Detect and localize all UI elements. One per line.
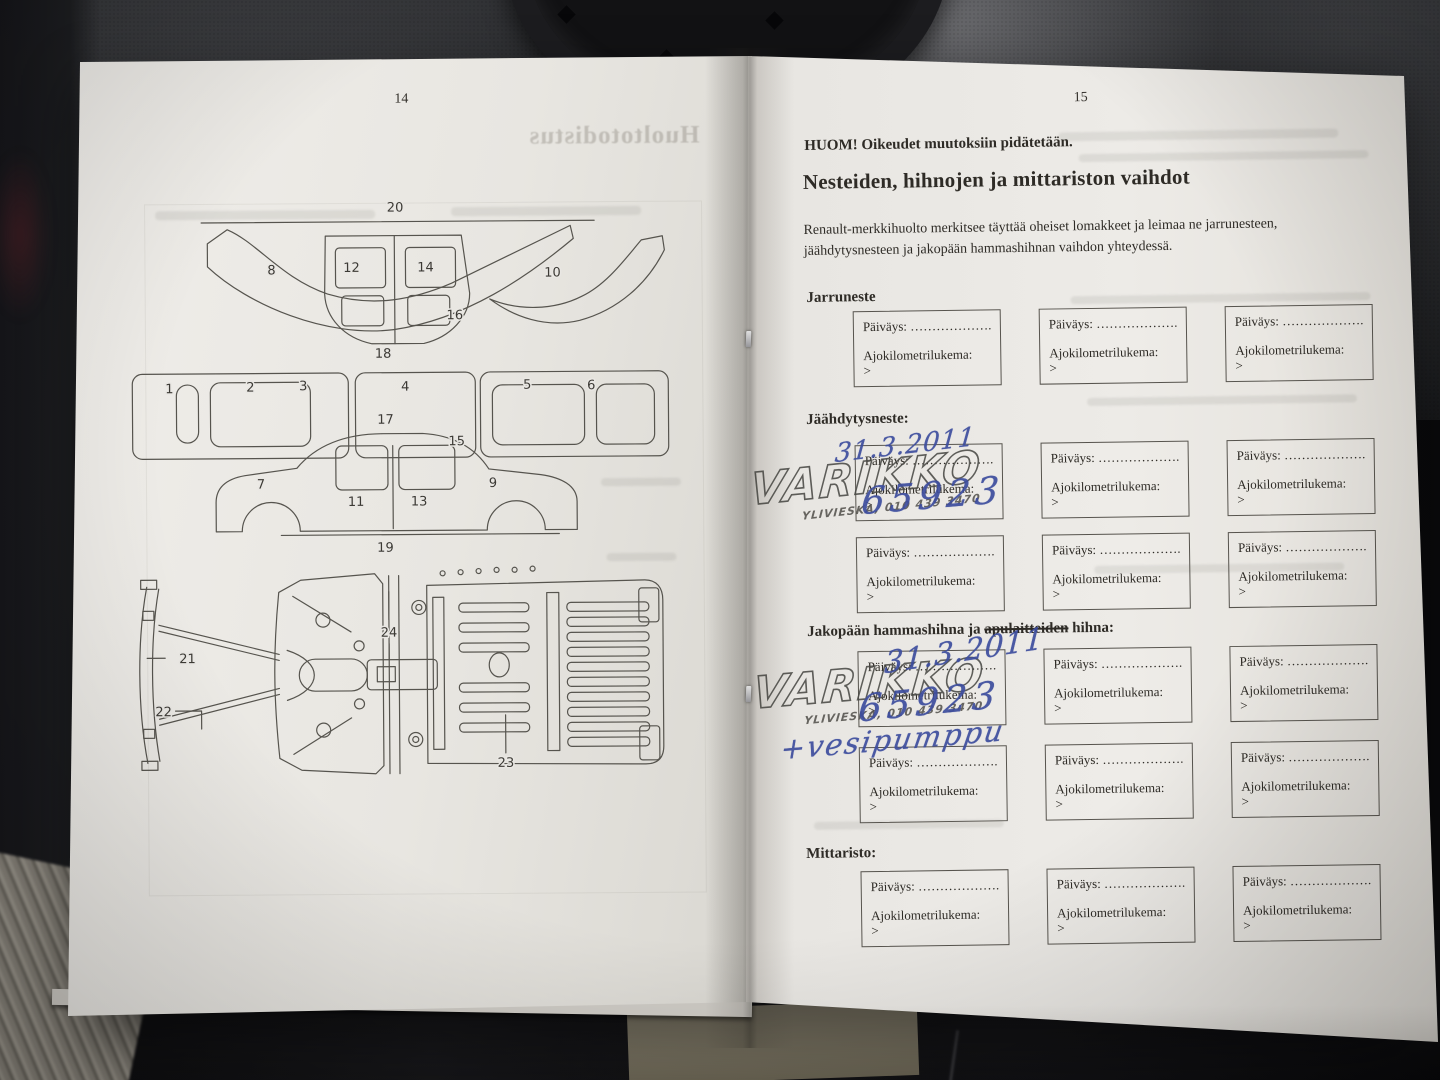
km-prompt: > [869, 798, 997, 813]
photo-of-service-booklet: 14 Huoltotodistus [0, 0, 1440, 1080]
ghost-text-bar [1058, 129, 1338, 142]
service-entry-box: Päiväys: ……………….. Ajokilometrilukema: > [1229, 644, 1378, 722]
km-prompt: > [1240, 697, 1368, 712]
km-prompt: > [871, 922, 999, 937]
heading-suffix: hihna: [1068, 620, 1114, 637]
date-label: Päiväys: ……………….. [1241, 748, 1369, 766]
service-entry-box: Päiväys: ……………….. Ajokilometrilukema: > [1042, 533, 1191, 611]
chassis-outlines [139, 565, 664, 775]
km-label: Ajokilometrilukema: [1241, 777, 1369, 795]
diagram-label-21: 21 [179, 652, 196, 667]
rights-notice: HUOM! Oikeudet muutoksiin pidätetään. [804, 134, 1073, 155]
km-label: Ajokilometrilukema: [1243, 901, 1371, 919]
diagram-label-1: 1 [165, 382, 173, 397]
km-label: Ajokilometrilukema: [1055, 780, 1183, 798]
km-prompt: > [1237, 491, 1365, 506]
date-label: Päiväys: ……………….. [1243, 872, 1371, 890]
service-entry-box: Päiväys: ……………….. Ajokilometrilukema: > [1227, 438, 1376, 516]
km-prompt: > [863, 362, 991, 377]
diagram-label-23: 23 [498, 756, 515, 771]
km-label: Ajokilometrilukema: [866, 572, 994, 590]
body-panel-numbers: 1 2 3 4 5 6 7 8 9 10 11 12 13 14 15 16 1 [164, 199, 597, 557]
km-label: Ajokilometrilukema: [1238, 567, 1366, 585]
page-number-right: 15 [1074, 90, 1088, 106]
diagram-label-7: 7 [257, 478, 265, 493]
km-prompt: > [1239, 583, 1367, 598]
km-label: Ajokilometrilukema: [1237, 475, 1365, 493]
staple [746, 331, 752, 347]
service-entry-box: Päiväys: ……………….. Ajokilometrilukema: > [1043, 647, 1192, 725]
diagram-label-17: 17 [377, 413, 394, 428]
diagram-label-10: 10 [544, 265, 561, 280]
km-prompt: > [1241, 793, 1369, 808]
car-underbody-diagram: 21 22 23 24 [126, 556, 668, 792]
left-page: 14 Huoltotodistus [60, 50, 760, 1030]
date-label: Päiväys: ……………….. [1049, 315, 1177, 333]
page-title: Nesteiden, hihnojen ja mittariston vaihd… [803, 165, 1190, 195]
diagram-label-20: 20 [387, 201, 404, 216]
car-body-panels-diagram: 1 2 3 4 5 6 7 8 9 10 11 12 13 14 15 16 1 [129, 194, 696, 558]
date-label: Päiväys: ……………….. [1054, 655, 1182, 673]
ghost-text-bar [1070, 292, 1370, 304]
km-prompt: > [1051, 494, 1179, 509]
km-label: Ajokilometrilukema: [863, 346, 991, 364]
service-entry-box: Päiväys: ……………….. Ajokilometrilukema: > [1231, 740, 1380, 818]
chassis-numbers: 21 22 23 24 [155, 625, 515, 773]
diagram-label-12: 12 [343, 261, 360, 276]
diagram-label-24: 24 [381, 626, 398, 641]
km-prompt: > [1054, 700, 1182, 715]
km-label: Ajokilometrilukema: [1051, 478, 1179, 496]
km-prompt: > [1055, 796, 1183, 811]
diagram-label-22: 22 [155, 705, 172, 720]
service-entry-box: Päiväys: ……………….. Ajokilometrilukema: > [856, 535, 1005, 613]
service-entry-box: Päiväys: ……………….. Ajokilometrilukema: > [860, 869, 1009, 947]
diagram-label-3: 3 [299, 379, 307, 394]
date-label: Päiväys: ……………….. [1239, 652, 1367, 670]
km-label: Ajokilometrilukema: [1049, 344, 1177, 362]
km-label: Ajokilometrilukema: [1054, 684, 1182, 702]
km-prompt: > [867, 588, 995, 603]
km-prompt: > [1049, 360, 1177, 375]
km-label: Ajokilometrilukema: [1052, 570, 1180, 588]
km-label: Ajokilometrilukema: [1235, 341, 1363, 359]
ghost-text-bar [1078, 150, 1368, 162]
km-label: Ajokilometrilukema: [869, 782, 997, 800]
date-label: Päiväys: ……………….. [1051, 449, 1179, 467]
service-entry-box: Päiväys: ……………….. Ajokilometrilukema: > [1046, 867, 1195, 945]
instrument-cluster-row: Päiväys: ……………….. Ajokilometrilukema: > … [860, 864, 1381, 947]
date-label: Päiväys: ……………….. [1055, 751, 1183, 769]
diagram-label-9: 9 [489, 476, 497, 491]
date-label: Päiväys: ……………….. [1237, 446, 1365, 464]
diagram-label-13: 13 [411, 494, 428, 509]
diagram-label-5: 5 [523, 378, 531, 393]
diagram-label-18: 18 [375, 347, 392, 362]
km-prompt: > [1243, 917, 1371, 932]
diagram-label-15: 15 [448, 434, 465, 449]
staple [746, 686, 752, 702]
km-label: Ajokilometrilukema: [1057, 904, 1185, 922]
diagram-label-19: 19 [377, 541, 394, 556]
km-prompt: > [1235, 357, 1363, 372]
page-number-left: 14 [394, 92, 408, 108]
service-entry-box: Päiväys: ……………….. Ajokilometrilukema: > [1039, 307, 1188, 385]
ghost-text-bar [1087, 394, 1357, 406]
section-heading-coolant: Jäähdytysneste: [806, 411, 909, 429]
service-entry-box: Päiväys: ……………….. Ajokilometrilukema: > [853, 309, 1002, 387]
date-label: Päiväys: ……………….. [1235, 312, 1363, 330]
date-label: Päiväys: ……………….. [866, 543, 994, 561]
date-label: Päiväys: ……………….. [1052, 541, 1180, 559]
date-label: Päiväys: ……………….. [871, 877, 999, 895]
diagram-label-2: 2 [246, 381, 254, 396]
service-entry-box: Päiväys: ……………….. Ajokilometrilukema: > [1232, 864, 1381, 942]
km-prompt: > [1057, 920, 1185, 935]
ghost-showthrough-title: Huoltotodistus [528, 121, 699, 150]
service-entry-box: Päiväys: ……………….. Ajokilometrilukema: > [1228, 530, 1377, 608]
section-heading-instrument-cluster: Mittaristo: [806, 845, 876, 863]
service-entry-box: Päiväys: ……………….. Ajokilometrilukema: > [1041, 441, 1190, 519]
section-heading-brake-fluid: Jarruneste [806, 289, 875, 307]
brake-fluid-row: Päiväys: ……………….. Ajokilometrilukema: > … [853, 304, 1374, 387]
km-label: Ajokilometrilukema: [871, 906, 999, 924]
date-label: Päiväys: ……………….. [1238, 538, 1366, 556]
service-entry-box: Päiväys: ……………….. Ajokilometrilukema: > [1045, 743, 1194, 821]
km-prompt: > [1053, 586, 1181, 601]
diagram-label-11: 11 [348, 495, 365, 510]
date-label: Päiväys: ……………….. [863, 317, 991, 335]
diagram-label-16: 16 [446, 308, 463, 323]
diagram-label-6: 6 [587, 378, 595, 393]
km-label: Ajokilometrilukema: [1240, 681, 1368, 699]
diagram-label-14: 14 [417, 260, 434, 275]
diagram-label-4: 4 [401, 380, 409, 395]
coolant-row-2: Päiväys: ……………….. Ajokilometrilukema: > … [856, 530, 1377, 613]
right-page: 15 HUOM! Oikeudet muutoksiin pidätetään.… [744, 50, 1440, 1050]
diagram-label-8: 8 [267, 263, 275, 278]
service-entry-box: Päiväys: ……………….. Ajokilometrilukema: > [1225, 304, 1374, 382]
service-form: 15 HUOM! Oikeudet muutoksiin pidätetään.… [737, 41, 1440, 1051]
date-label: Päiväys: ……………….. [1057, 875, 1185, 893]
intro-text: Renault-merkkihuolto merkitsee täyttää o… [803, 213, 1320, 262]
